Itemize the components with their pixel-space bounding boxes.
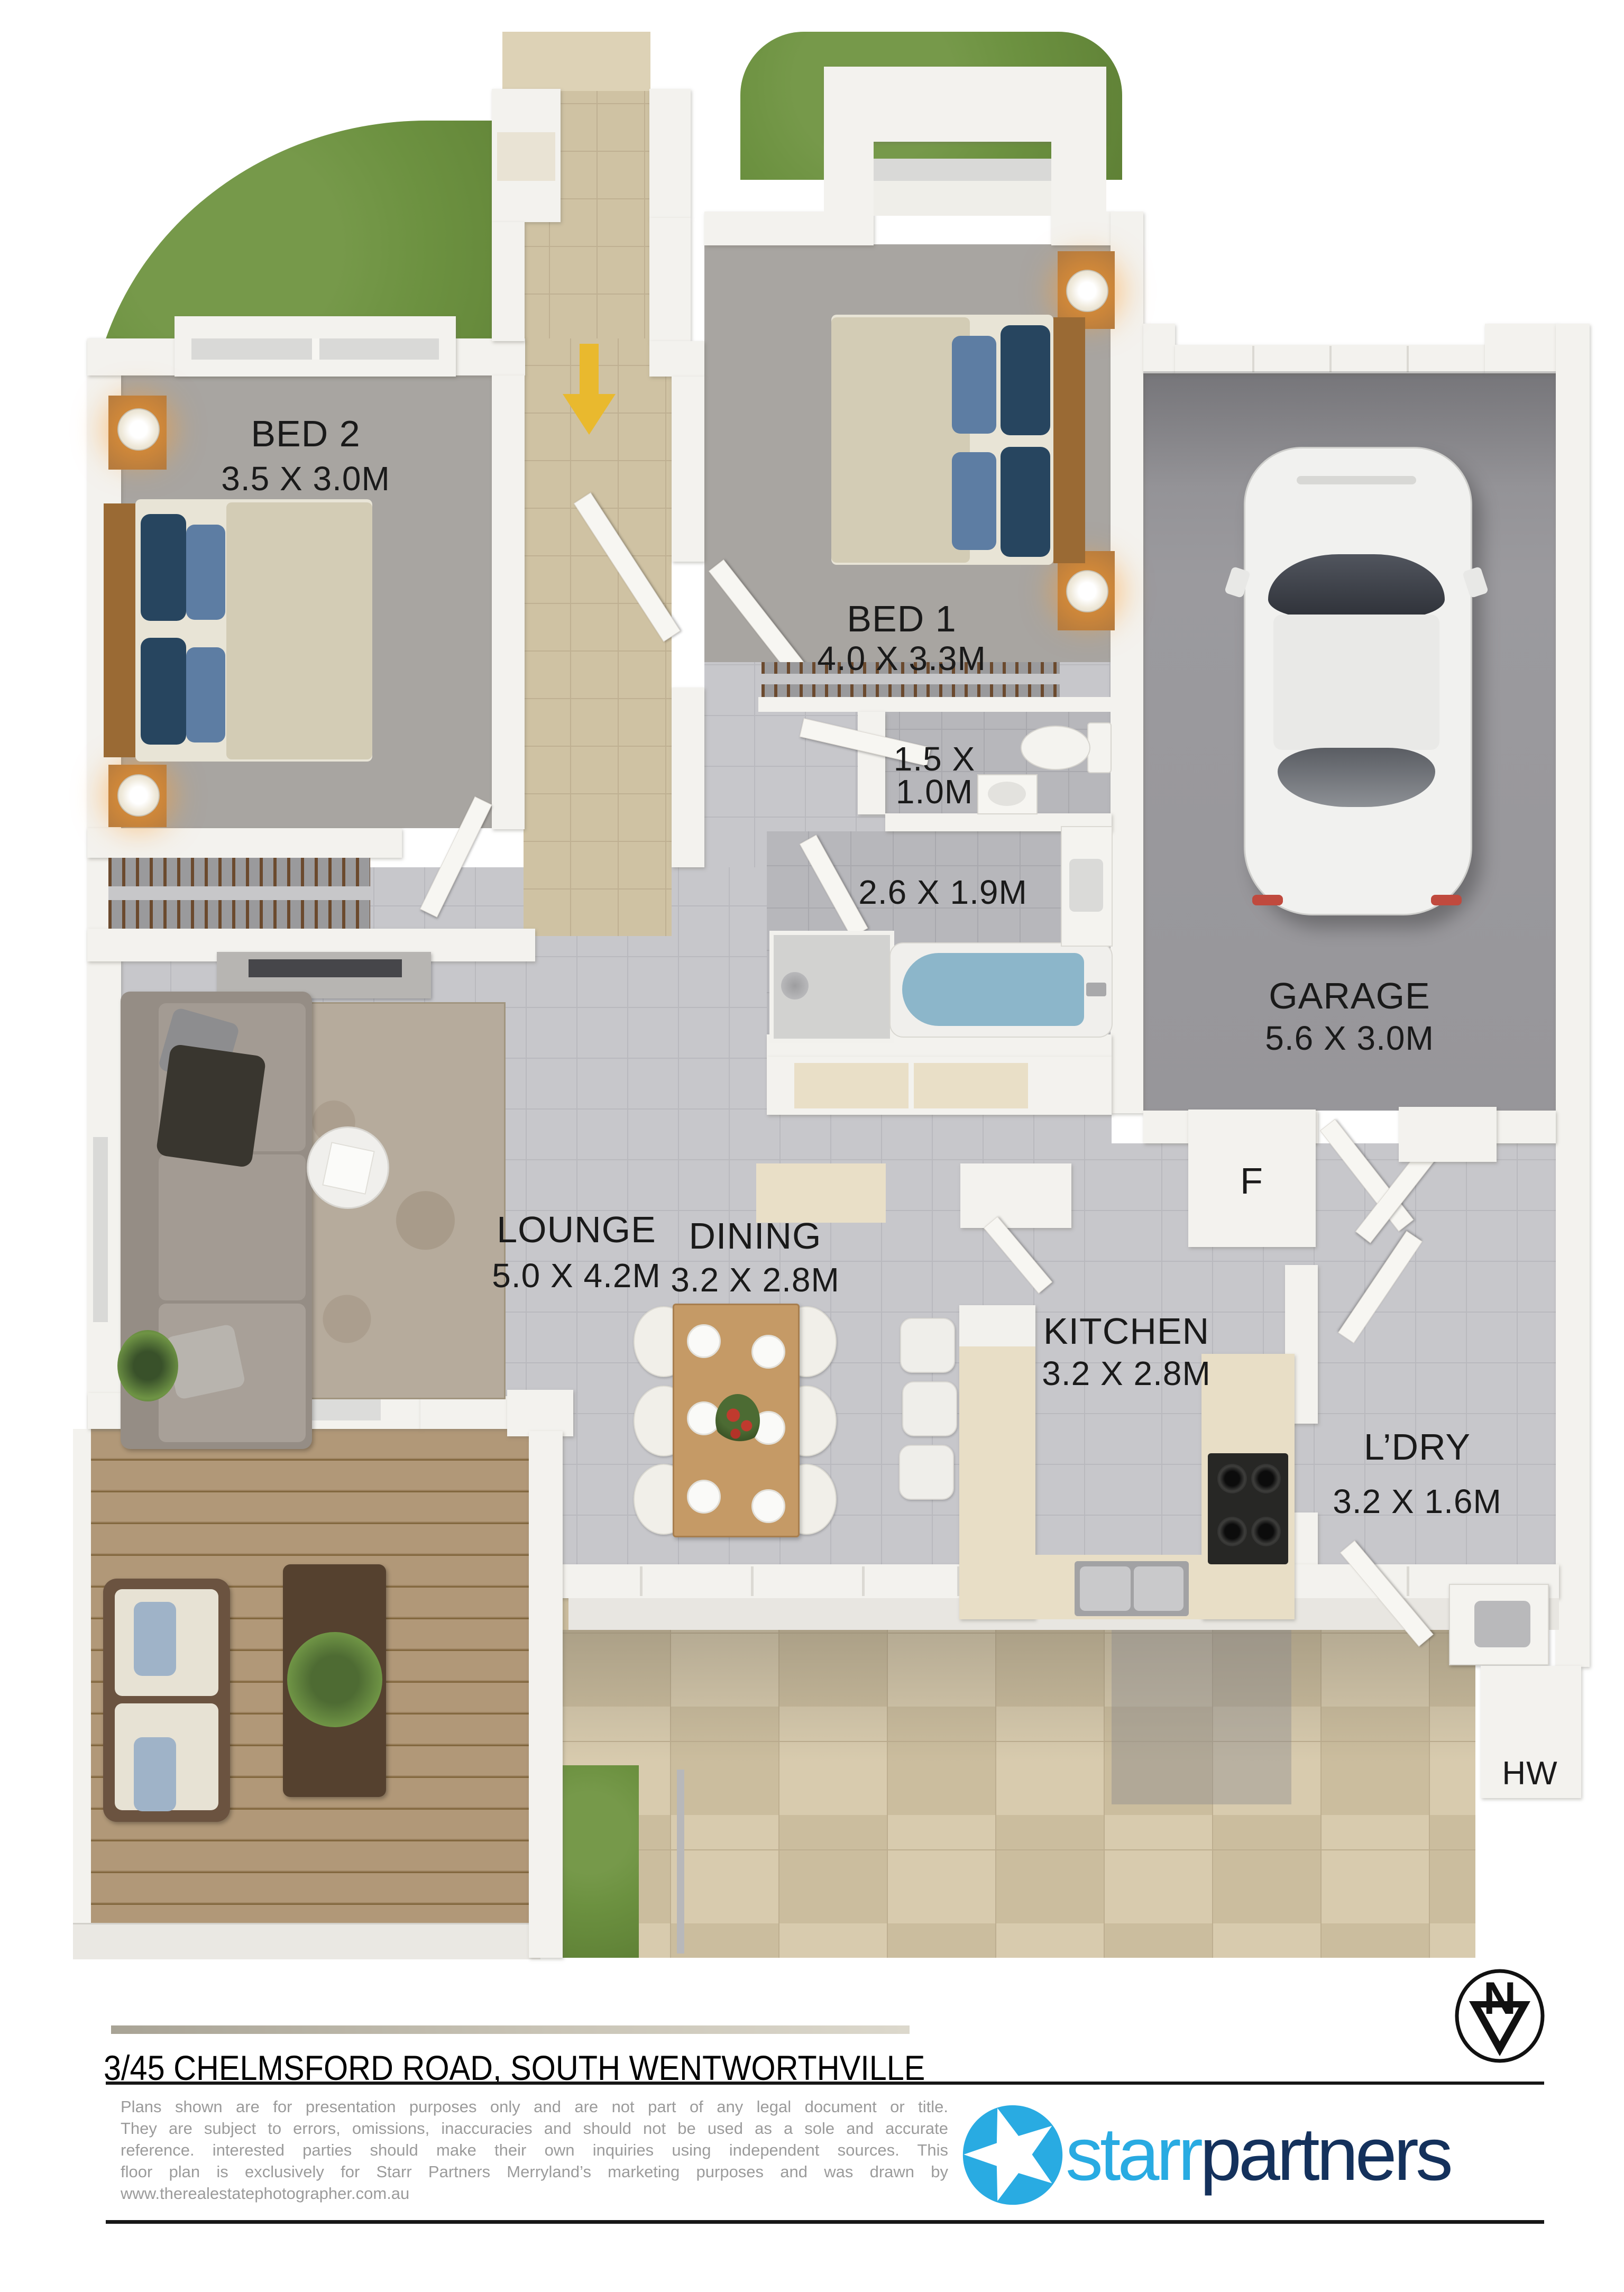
kitchen-stool [900, 1318, 955, 1373]
bed1-north-wall-right [1051, 212, 1112, 245]
disclaimer-website: www.therealestatephotographer.com.au [121, 2183, 948, 2204]
sofa-cushion [159, 1154, 306, 1300]
wc-dims-line2: 1.0M [896, 772, 973, 811]
sink-basin [1134, 1566, 1183, 1611]
footer-bottom-line [106, 2220, 1544, 2224]
laundry-bench [1399, 1107, 1497, 1162]
bed2-window-mullion [312, 338, 319, 360]
bed1-bay-post-left [824, 142, 874, 216]
starr-partners-logo-icon [960, 2102, 1066, 2208]
stove-cooktop [1208, 1453, 1288, 1564]
south-wall-joint [751, 1566, 754, 1596]
bed1-pillow [952, 336, 996, 434]
tv-screen [249, 959, 402, 977]
kitchen-bench-left-cap [959, 1305, 1035, 1346]
floor-plan-page: BED 2 3.5 X 3.0M BED 1 4.0 X 3.3M 1.5 X … [0, 0, 1624, 2292]
dining-plate [687, 1480, 721, 1514]
wc-basin [977, 774, 1038, 814]
bed1-west-wall-upper [672, 377, 704, 562]
bed1-west-wall-lower [672, 687, 704, 867]
bed2-pillow [186, 647, 225, 742]
coffee-table-book [322, 1142, 375, 1195]
kitchen-label: KITCHEN [1043, 1310, 1209, 1352]
bath-dims: 2.6 X 1.9M [858, 873, 1027, 912]
north-letter: N [1483, 1973, 1516, 2024]
disclaimer-text: Plans shown are for presentation purpose… [121, 2096, 948, 2204]
garage-label: GARAGE [1269, 975, 1430, 1017]
bed1-duvet [831, 317, 970, 563]
porch-rail-right [649, 89, 691, 218]
stove-burner [1217, 1464, 1247, 1493]
disclaimer-line: They are subject to errors, omissions, i… [121, 2117, 948, 2139]
kitchen-hall-cabinet [960, 1163, 1071, 1228]
outdoor-table-plant [287, 1632, 382, 1727]
disclaimer-line: floor plan is exclusively for Starr Part… [121, 2161, 948, 2183]
bed2-headboard [104, 503, 135, 757]
disclaimer-line: reference. interested parties should mak… [121, 2139, 948, 2161]
bed2-pillow [186, 525, 225, 620]
bed2-pillow [141, 638, 186, 745]
bed1-lamp [1066, 570, 1108, 612]
car-roof [1273, 615, 1439, 750]
stove-burner [1251, 1517, 1281, 1546]
dining-table [673, 1304, 800, 1537]
laundry-tub-basin [1474, 1601, 1530, 1647]
deck-ne-pillar [507, 1390, 573, 1436]
deck-south-apron [73, 1923, 540, 1959]
bath-vanity [1061, 826, 1113, 947]
linen-door [914, 1063, 1028, 1108]
dining-plate [751, 1489, 785, 1523]
kitchen-dims: 3.2 X 2.8M [1042, 1354, 1211, 1393]
entry-west-wall [492, 222, 525, 341]
outdoor-table [283, 1564, 386, 1797]
bed1-lamp [1066, 270, 1108, 312]
bed1-pillow [1001, 447, 1050, 557]
dining-sideboard [756, 1163, 886, 1223]
kitchen-sink [1075, 1561, 1189, 1616]
stove-burner [1251, 1464, 1281, 1493]
shower [769, 931, 894, 1043]
bathtub [889, 942, 1113, 1038]
deck-west-wall [73, 1429, 91, 1958]
outdoor-sofa [103, 1579, 230, 1822]
fridge-marker: F [1240, 1160, 1263, 1202]
car-grille [1297, 476, 1416, 484]
bathtub-water [902, 953, 1084, 1026]
lounge-dims: 5.0 X 4.2M [492, 1256, 661, 1295]
laundry-dims: 3.2 X 1.6M [1333, 1482, 1502, 1521]
stove-burner [1217, 1517, 1247, 1546]
dining-label: DINING [689, 1215, 822, 1257]
dining-centrepiece-flowers [715, 1394, 760, 1447]
kitchen-stool [902, 1381, 957, 1436]
north-arrow-icon: N [1453, 1968, 1546, 2064]
bed1-headboard [1053, 317, 1085, 563]
lounge-west-window [93, 1137, 108, 1322]
car-taillight [1252, 895, 1283, 905]
dining-plate [687, 1324, 721, 1358]
courtyard-pavers [563, 1598, 1475, 1958]
toilet-tank [1087, 722, 1112, 773]
hall-bed2-wall [492, 375, 525, 829]
garage-north-stub-left [1143, 324, 1175, 373]
bed2-wardrobe [108, 858, 370, 929]
bed1-pillow [952, 452, 996, 550]
entry-east-wall [649, 218, 691, 341]
bed2-pillow [141, 514, 186, 621]
disclaimer-line: Plans shown are for presentation purpose… [121, 2096, 948, 2117]
south-wall-joint [1407, 1566, 1409, 1596]
bed1-window-glass [874, 159, 1051, 181]
garage-door-joint [1329, 346, 1332, 372]
dining-plate [751, 1335, 785, 1369]
hot-water-marker: HW [1502, 1755, 1557, 1792]
sofa-throw-blanket [155, 1043, 267, 1168]
shower-head [781, 972, 809, 1000]
garden-fence [677, 1770, 684, 1954]
bed1-window-sill [874, 181, 1051, 216]
coffee-table [307, 1126, 389, 1209]
outdoor-pillow [134, 1602, 176, 1676]
wc-west-jamb [858, 712, 885, 814]
address-divider-line [106, 2082, 1544, 2085]
logo-word-starr: starr [1066, 2112, 1200, 2196]
bed1-pillow [1001, 325, 1050, 435]
hall-bed1-corner [649, 341, 704, 377]
car-windshield [1268, 554, 1445, 619]
garage-door-joint [1252, 346, 1254, 372]
bed2-wardrobe-rail [108, 886, 370, 900]
wc-basin-bowl [988, 782, 1026, 806]
garage-west-wall [1111, 212, 1143, 1113]
logo-word-partners: partners [1200, 2112, 1450, 2196]
entry-arrow-icon [559, 344, 619, 436]
starr-partners-logo-text: starrpartners [1066, 2111, 1450, 2198]
dining-dims: 3.2 X 2.8M [671, 1260, 840, 1299]
south-wall-joint [640, 1566, 643, 1596]
bed2-lamp [117, 408, 160, 451]
vanity-basin [1069, 859, 1103, 912]
bed1-label: BED 1 [847, 598, 956, 640]
linen-door [794, 1063, 909, 1108]
bed2-south-wall [87, 828, 402, 858]
laundry-label: L’DRY [1364, 1426, 1471, 1468]
bed2-lamp [117, 774, 160, 817]
bed1-bay-post-right [1051, 142, 1106, 216]
garage-door-joint [1407, 346, 1409, 372]
footer-accent-bar [111, 2025, 910, 2034]
porch-steps [497, 132, 555, 181]
garage-dims: 5.6 X 3.0M [1265, 1019, 1434, 1058]
laundry-tub [1449, 1584, 1549, 1665]
porch-tiles [502, 32, 650, 91]
robe1-back-wall [758, 697, 1112, 712]
south-wall-joint [862, 1566, 865, 1596]
garage-north-stub-right [1485, 324, 1557, 373]
car-taillight [1431, 895, 1462, 905]
bed2-duvet [226, 502, 372, 759]
deck-east-wall [529, 1431, 563, 1958]
side-garden [563, 1765, 639, 1958]
sink-basin [1080, 1566, 1131, 1611]
outer-east-wall [1556, 324, 1590, 1667]
outdoor-pillow [134, 1737, 176, 1811]
kitchen-stool [899, 1445, 954, 1500]
toilet-bowl [1021, 726, 1090, 770]
bed1-dims: 4.0 X 3.3M [817, 639, 986, 678]
bath-tap [1086, 983, 1106, 996]
lounge-plant [117, 1330, 178, 1401]
lounge-label: LOUNGE [497, 1208, 656, 1251]
bed2-dims: 3.5 X 3.0M [221, 459, 390, 498]
bed2-label: BED 2 [251, 412, 360, 455]
bed1-north-wall-left [704, 212, 874, 245]
bed1-bay-slab [824, 67, 1106, 142]
